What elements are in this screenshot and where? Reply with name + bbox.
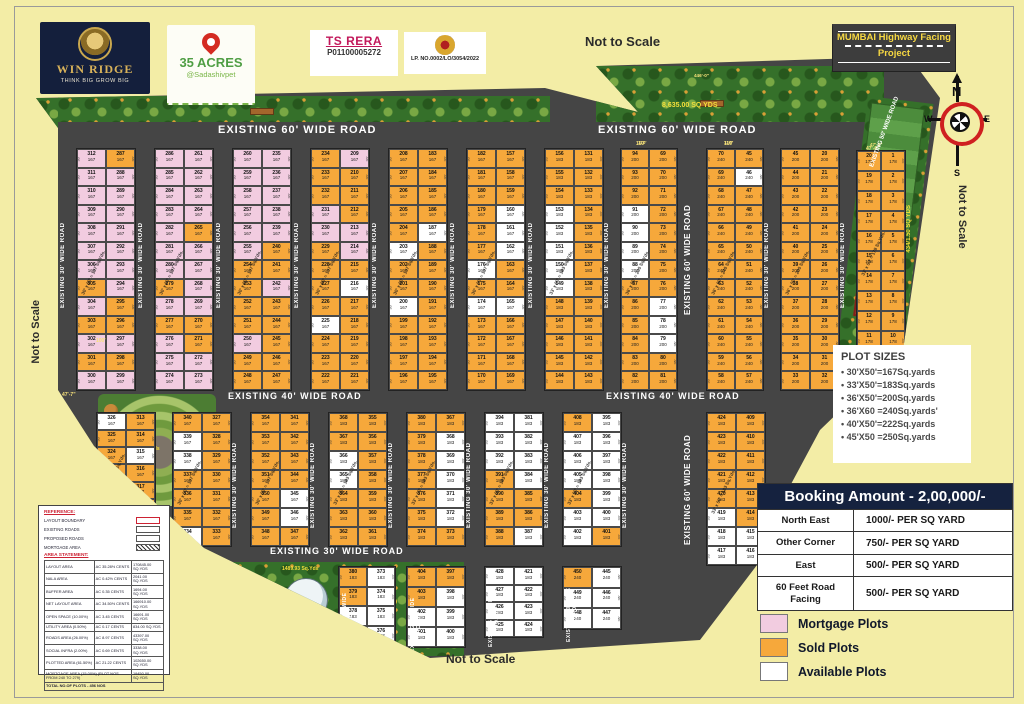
plot-cell[interactable]: 25316730': [233, 279, 262, 298]
plot-cell[interactable]: 32616730': [97, 413, 126, 430]
plot-cell[interactable]: 38618333': [514, 508, 543, 527]
plot-cell[interactable]: 17116730': [467, 353, 496, 372]
plot-cell[interactable]: 19816730': [389, 334, 418, 353]
plot-cell[interactable]: 32716730': [202, 413, 231, 432]
plot-cell[interactable]: 22716730': [311, 279, 340, 298]
plot-cell[interactable]: 16116730': [496, 223, 525, 242]
plot-cell[interactable]: 42218333': [707, 451, 736, 470]
plot-cell[interactable]: 20916730': [340, 149, 369, 168]
plot-cell[interactable]: 37118333': [436, 489, 465, 508]
plot-cell[interactable]: 18716730': [418, 223, 447, 242]
plot-cell[interactable]: 27716730': [155, 316, 184, 335]
plot-cell[interactable]: 8320036': [621, 353, 649, 372]
plot-cell[interactable]: 18216730': [467, 149, 496, 168]
plot-cell[interactable]: 7520036': [649, 260, 677, 279]
plot-cell[interactable]: 15318333': [545, 205, 574, 224]
plot-cell[interactable]: 25816730': [233, 186, 262, 205]
plot-cell[interactable]: 26416730': [184, 205, 213, 224]
plot-cell[interactable]: 39718333': [436, 567, 465, 587]
plot-cell[interactable]: 3620036': [781, 316, 810, 335]
plot-cell[interactable]: 21716730': [340, 297, 369, 316]
plot-cell[interactable]: 21116730': [340, 186, 369, 205]
plot-cell[interactable]: 39218333': [485, 451, 514, 470]
plot-cell[interactable]: 28216730': [155, 223, 184, 242]
plot-cell[interactable]: 14618333': [545, 334, 574, 353]
plot-cell[interactable]: 5624036': [735, 353, 763, 372]
plot-cell[interactable]: 15118333': [545, 242, 574, 261]
plot-cell[interactable]: 5324036': [735, 297, 763, 316]
plot-cell[interactable]: 3820036': [781, 279, 810, 298]
plot-cell[interactable]: 37518333': [367, 606, 395, 626]
plot-cell[interactable]: 24916730': [233, 353, 262, 372]
plot-cell[interactable]: 28516730': [155, 168, 184, 187]
plot-cell[interactable]: 4020036': [781, 242, 810, 261]
plot-cell[interactable]: 25516730': [233, 242, 262, 261]
plot-cell[interactable]: 4320036': [781, 186, 810, 205]
plot-cell[interactable]: 21816730': [340, 316, 369, 335]
plot-cell[interactable]: 28716730': [106, 149, 135, 168]
plot-cell[interactable]: 39818333': [436, 587, 465, 607]
plot-cell[interactable]: 817833': [881, 291, 905, 311]
plot-cell[interactable]: 1317833': [857, 291, 881, 311]
plot-cell[interactable]: 20016730': [389, 297, 418, 316]
plot-cell[interactable]: 15816730': [496, 168, 525, 187]
plot-cell[interactable]: 8620036': [621, 297, 649, 316]
plot-cell[interactable]: 36718333': [329, 432, 358, 451]
plot-cell[interactable]: 18016730': [467, 186, 496, 205]
plot-cell[interactable]: 40318333': [563, 508, 592, 527]
plot-cell[interactable]: 39318333': [485, 432, 514, 451]
plot-cell[interactable]: 41918333': [707, 508, 736, 527]
plot-cell[interactable]: 35416730': [251, 413, 280, 432]
plot-cell[interactable]: 27216730': [184, 353, 213, 372]
plot-cell[interactable]: 7320036': [649, 223, 677, 242]
plot-cell[interactable]: 21916730': [340, 334, 369, 353]
plot-cell[interactable]: 22616730': [311, 297, 340, 316]
plot-cell[interactable]: 34016730': [173, 413, 202, 432]
plot-cell[interactable]: 40118333': [592, 527, 621, 546]
plot-cell[interactable]: 1517833': [857, 251, 881, 271]
plot-cell[interactable]: 39718333': [592, 451, 621, 470]
plot-cell[interactable]: 2320036': [810, 205, 839, 224]
plot-cell[interactable]: 7720036': [649, 297, 677, 316]
plot-cell[interactable]: 3720036': [781, 297, 810, 316]
plot-cell[interactable]: 217833': [881, 171, 905, 191]
plot-cell[interactable]: 3420036': [781, 353, 810, 372]
plot-cell[interactable]: 28416730': [155, 186, 184, 205]
plot-cell[interactable]: 17216730': [467, 334, 496, 353]
plot-cell[interactable]: 38118333': [514, 413, 543, 432]
plot-cell[interactable]: 9420036': [621, 149, 649, 168]
plot-cell[interactable]: 4924036': [735, 223, 763, 242]
plot-cell[interactable]: 917833': [881, 311, 905, 331]
plot-cell[interactable]: 37318333': [367, 567, 395, 587]
plot-cell[interactable]: 44624036': [592, 588, 621, 609]
plot-cell[interactable]: 2120036': [810, 168, 839, 187]
plot-cell[interactable]: 27416730': [155, 371, 184, 390]
plot-cell[interactable]: 8920036': [621, 242, 649, 261]
plot-cell[interactable]: 8120036': [649, 371, 677, 390]
plot-cell[interactable]: 24016730': [262, 242, 291, 261]
plot-cell[interactable]: 31116730': [77, 168, 106, 187]
plot-cell[interactable]: 39918333': [592, 489, 621, 508]
plot-cell[interactable]: 2420036': [810, 223, 839, 242]
plot-cell[interactable]: 23116730': [311, 205, 340, 224]
plot-cell[interactable]: 22516730': [311, 316, 340, 335]
plot-cell[interactable]: 20616730': [389, 186, 418, 205]
plot-cell[interactable]: 18316730': [418, 149, 447, 168]
plot-cell[interactable]: 19016730': [418, 279, 447, 298]
plot-cell[interactable]: 40418333': [563, 489, 592, 508]
plot-cell[interactable]: 38718333': [514, 527, 543, 546]
plot-cell[interactable]: 17916730': [467, 205, 496, 224]
plot-cell[interactable]: 24516730': [262, 334, 291, 353]
plot-cell[interactable]: 37618333': [407, 489, 436, 508]
plot-cell[interactable]: 29116730': [106, 223, 135, 242]
plot-cell[interactable]: 39518333': [592, 413, 621, 432]
plot-cell[interactable]: 35316730': [251, 432, 280, 451]
plot-cell[interactable]: 33616730': [173, 489, 202, 508]
plot-cell[interactable]: 42118333': [707, 470, 736, 489]
plot-cell[interactable]: 16616730': [496, 316, 525, 335]
plot-cell[interactable]: 20716730': [389, 168, 418, 187]
plot-cell[interactable]: 25716730': [233, 205, 262, 224]
plot-cell[interactable]: 19116730': [418, 297, 447, 316]
plot-cell[interactable]: 40718333': [563, 432, 592, 451]
plot-cell[interactable]: 6224036': [707, 297, 735, 316]
plot-cell[interactable]: 39818333': [592, 470, 621, 489]
plot-cell[interactable]: 36318333': [329, 508, 358, 527]
plot-cell[interactable]: 2920036': [810, 316, 839, 335]
plot-cell[interactable]: 28916730': [106, 186, 135, 205]
plot-cell[interactable]: 14218333': [574, 353, 603, 372]
plot-cell[interactable]: 38218333': [514, 432, 543, 451]
plot-cell[interactable]: 37818333': [407, 451, 436, 470]
plot-cell[interactable]: 26316730': [184, 186, 213, 205]
plot-cell[interactable]: 42318333': [514, 602, 543, 620]
plot-cell[interactable]: 6920036': [649, 149, 677, 168]
plot-cell[interactable]: 34116730': [280, 413, 309, 432]
plot-cell[interactable]: 35718333': [358, 451, 387, 470]
plot-cell[interactable]: 39118333': [485, 470, 514, 489]
plot-cell[interactable]: 44724036': [592, 608, 621, 629]
plot-cell[interactable]: 5124036': [735, 260, 763, 279]
plot-cell[interactable]: 28616730': [155, 149, 184, 168]
plot-cell[interactable]: 33816730': [173, 451, 202, 470]
plot-cell[interactable]: 32916730': [202, 451, 231, 470]
plot-cell[interactable]: 41118333': [736, 451, 765, 470]
plot-cell[interactable]: 29916730': [106, 371, 135, 390]
plot-cell[interactable]: 31316730': [126, 413, 155, 430]
plot-cell[interactable]: 26516730': [184, 223, 213, 242]
plot-cell[interactable]: 42118333': [514, 567, 543, 585]
plot-cell[interactable]: 17516730': [467, 279, 496, 298]
plot-cell[interactable]: 21216730': [340, 205, 369, 224]
plot-cell[interactable]: 6824036': [707, 186, 735, 205]
plot-cell[interactable]: 26816730': [184, 279, 213, 298]
plot-cell[interactable]: 7820036': [649, 316, 677, 335]
plot-cell[interactable]: 27016730': [184, 316, 213, 335]
plot-cell[interactable]: 13818333': [574, 279, 603, 298]
plot-cell[interactable]: 15916730': [496, 186, 525, 205]
plot-cell[interactable]: 25116730': [233, 316, 262, 335]
plot-cell[interactable]: 37718333': [407, 470, 436, 489]
plot-cell[interactable]: 6424036': [707, 260, 735, 279]
plot-cell[interactable]: 30916730': [77, 205, 106, 224]
plot-cell[interactable]: 34516730': [280, 489, 309, 508]
plot-cell[interactable]: 37918333': [407, 432, 436, 451]
plot-cell[interactable]: 15018333': [545, 260, 574, 279]
plot-cell[interactable]: 35116730': [251, 470, 280, 489]
plot-cell[interactable]: 42418333': [707, 413, 736, 432]
plot-cell[interactable]: 33716730': [173, 470, 202, 489]
plot-cell[interactable]: 16716730': [496, 334, 525, 353]
plot-cell[interactable]: 30016730': [77, 371, 106, 390]
plot-cell[interactable]: 15218333': [545, 223, 574, 242]
plot-cell[interactable]: 31216730': [77, 149, 106, 168]
plot-cell[interactable]: 29016730': [106, 205, 135, 224]
plot-cell[interactable]: 22316730': [311, 353, 340, 372]
plot-cell[interactable]: 24716730': [262, 371, 291, 390]
plot-cell[interactable]: 40918333': [736, 413, 765, 432]
plot-cell[interactable]: 36118333': [358, 527, 387, 546]
plot-cell[interactable]: 26616730': [184, 242, 213, 261]
plot-cell[interactable]: 20516730': [389, 205, 418, 224]
plot-cell[interactable]: 37218333': [436, 508, 465, 527]
plot-cell[interactable]: 27816730': [155, 297, 184, 316]
plot-cell[interactable]: 19616730': [389, 371, 418, 390]
plot-cell[interactable]: 17616730': [467, 260, 496, 279]
plot-cell[interactable]: 13718333': [574, 260, 603, 279]
plot-cell[interactable]: 4624036': [735, 168, 763, 187]
plot-cell[interactable]: 18916730': [418, 260, 447, 279]
plot-cell[interactable]: 36818333': [329, 413, 358, 432]
plot-cell[interactable]: 36518333': [329, 470, 358, 489]
plot-cell[interactable]: 35818333': [358, 470, 387, 489]
plot-cell[interactable]: 6724036': [707, 205, 735, 224]
plot-cell[interactable]: 23316730': [311, 168, 340, 187]
plot-cell[interactable]: 15518333': [545, 168, 574, 187]
plot-cell[interactable]: 617833': [881, 251, 905, 271]
plot-cell[interactable]: 36918333': [436, 451, 465, 470]
plot-cell[interactable]: 1817833': [857, 191, 881, 211]
plot-cell[interactable]: 41818333': [707, 527, 736, 546]
plot-cell[interactable]: 7020036': [649, 168, 677, 187]
plot-cell[interactable]: 24216730': [262, 279, 291, 298]
plot-cell[interactable]: 23416730': [311, 149, 340, 168]
plot-cell[interactable]: 9020036': [621, 223, 649, 242]
plot-cell[interactable]: 33016730': [202, 470, 231, 489]
plot-cell[interactable]: 32516730': [97, 430, 126, 447]
plot-cell[interactable]: 22816730': [311, 260, 340, 279]
plot-cell[interactable]: 29316730': [106, 260, 135, 279]
plot-cell[interactable]: 16416730': [496, 279, 525, 298]
plot-cell[interactable]: 5024036': [735, 242, 763, 261]
plot-cell[interactable]: 5224036': [735, 279, 763, 298]
plot-cell[interactable]: 15716730': [496, 149, 525, 168]
plot-cell[interactable]: 19716730': [389, 353, 418, 372]
plot-cell[interactable]: 30516730': [77, 279, 106, 298]
plot-cell[interactable]: 16216730': [496, 242, 525, 261]
plot-cell[interactable]: 34616730': [280, 508, 309, 527]
plot-cell[interactable]: 29216730': [106, 242, 135, 261]
plot-cell[interactable]: 19516730': [418, 371, 447, 390]
plot-cell[interactable]: 7120036': [649, 186, 677, 205]
plot-cell[interactable]: 23816730': [262, 205, 291, 224]
plot-cell[interactable]: 16516730': [496, 297, 525, 316]
plot-cell[interactable]: 26116730': [184, 149, 213, 168]
plot-cell[interactable]: 31616730': [126, 464, 155, 481]
plot-cell[interactable]: 19216730': [418, 316, 447, 335]
plot-cell[interactable]: 17716730': [467, 242, 496, 261]
plot-cell[interactable]: 35216730': [251, 451, 280, 470]
plot-cell[interactable]: 37018333': [436, 470, 465, 489]
plot-cell[interactable]: 34416730': [280, 470, 309, 489]
plot-cell[interactable]: 27916730': [155, 279, 184, 298]
plot-cell[interactable]: 6024036': [707, 334, 735, 353]
plot-cell[interactable]: 28116730': [155, 242, 184, 261]
plot-cell[interactable]: 35918333': [358, 489, 387, 508]
plot-cell[interactable]: 8220036': [621, 371, 649, 390]
plot-cell[interactable]: 18816730': [418, 242, 447, 261]
plot-cell[interactable]: 42418333': [514, 620, 543, 638]
plot-cell[interactable]: 14818333': [545, 297, 574, 316]
plot-cell[interactable]: 7220036': [649, 205, 677, 224]
plot-cell[interactable]: 5924036': [707, 353, 735, 372]
plot-cell[interactable]: 317833': [881, 191, 905, 211]
plot-cell[interactable]: 33916730': [173, 432, 202, 451]
plot-cell[interactable]: 39618333': [592, 432, 621, 451]
plot-cell[interactable]: 6324036': [707, 279, 735, 298]
plot-cell[interactable]: 36818333': [436, 432, 465, 451]
plot-cell[interactable]: 42218333': [514, 585, 543, 603]
plot-cell[interactable]: 717833': [881, 271, 905, 291]
plot-cell[interactable]: 40018333': [592, 508, 621, 527]
plot-cell[interactable]: 8820036': [621, 260, 649, 279]
plot-cell[interactable]: 5824036': [707, 371, 735, 390]
plot-cell[interactable]: 2620036': [810, 260, 839, 279]
plot-cell[interactable]: 37418333': [367, 587, 395, 607]
plot-cell[interactable]: 33116730': [202, 489, 231, 508]
plot-cell[interactable]: 14418333': [545, 371, 574, 390]
plot-cell[interactable]: 5724036': [735, 371, 763, 390]
plot-cell[interactable]: 13218333': [574, 168, 603, 187]
plot-cell[interactable]: 6624036': [707, 223, 735, 242]
plot-cell[interactable]: 417833': [881, 211, 905, 231]
plot-cell[interactable]: 25616730': [233, 223, 262, 242]
plot-cell[interactable]: 7420036': [649, 242, 677, 261]
plot-cell[interactable]: 42318333': [707, 432, 736, 451]
plot-cell[interactable]: 38318333': [514, 451, 543, 470]
plot-cell[interactable]: 41718333': [707, 546, 736, 565]
plot-cell[interactable]: 23516730': [262, 149, 291, 168]
plot-cell[interactable]: 29516730': [106, 297, 135, 316]
plot-cell[interactable]: 26216730': [184, 168, 213, 187]
plot-cell[interactable]: 8420036': [621, 334, 649, 353]
plot-cell[interactable]: 42818333': [485, 567, 514, 585]
plot-cell[interactable]: 24816730': [233, 371, 262, 390]
plot-cell[interactable]: 40218333': [563, 527, 592, 546]
plot-cell[interactable]: 27116730': [184, 334, 213, 353]
plot-cell[interactable]: 37518333': [407, 508, 436, 527]
plot-cell[interactable]: 39918333': [436, 607, 465, 627]
plot-cell[interactable]: 31516730': [126, 447, 155, 464]
plot-cell[interactable]: 9120036': [621, 205, 649, 224]
plot-cell[interactable]: 28016730': [155, 260, 184, 279]
plot-cell[interactable]: 30316730': [77, 316, 106, 335]
plot-cell[interactable]: 6524036': [707, 242, 735, 261]
plot-cell[interactable]: 19416730': [418, 353, 447, 372]
plot-cell[interactable]: 34816730': [251, 527, 280, 546]
plot-cell[interactable]: 35518333': [358, 413, 387, 432]
plot-cell[interactable]: 21416730': [340, 242, 369, 261]
plot-cell[interactable]: 2020036': [810, 149, 839, 168]
plot-cell[interactable]: 42018333': [707, 489, 736, 508]
plot-cell[interactable]: 40418333': [407, 567, 436, 587]
plot-cell[interactable]: 20316730': [389, 242, 418, 261]
plot-cell[interactable]: 23616730': [262, 168, 291, 187]
plot-cell[interactable]: 5524036': [735, 334, 763, 353]
plot-cell[interactable]: 40618333': [563, 451, 592, 470]
plot-cell[interactable]: 4824036': [735, 205, 763, 224]
plot-cell[interactable]: 31016730': [77, 186, 106, 205]
plot-cell[interactable]: 29616730': [106, 316, 135, 335]
plot-cell[interactable]: 21316730': [340, 223, 369, 242]
plot-cell[interactable]: 25416730': [233, 260, 262, 279]
plot-cell[interactable]: 7024036': [707, 149, 735, 168]
plot-cell[interactable]: 5424036': [735, 316, 763, 335]
plot-cell[interactable]: 15618333': [545, 149, 574, 168]
plot-cell[interactable]: 22216730': [311, 371, 340, 390]
plot-cell[interactable]: 14518333': [545, 353, 574, 372]
plot-cell[interactable]: 35618333': [358, 432, 387, 451]
plot-cell[interactable]: 3920036': [781, 260, 810, 279]
plot-cell[interactable]: 4120036': [781, 223, 810, 242]
plot-cell[interactable]: 8520036': [621, 316, 649, 335]
plot-cell[interactable]: 16016730': [496, 205, 525, 224]
plot-cell[interactable]: 1417833': [857, 271, 881, 291]
plot-cell[interactable]: 22116730': [340, 371, 369, 390]
plot-cell[interactable]: 27316730': [184, 371, 213, 390]
plot-cell[interactable]: 13918333': [574, 297, 603, 316]
plot-cell[interactable]: 21016730': [340, 168, 369, 187]
plot-cell[interactable]: 32816730': [202, 432, 231, 451]
plot-cell[interactable]: 17316730': [467, 316, 496, 335]
plot-cell[interactable]: 27616730': [155, 334, 184, 353]
plot-cell[interactable]: 31416730': [126, 430, 155, 447]
plot-cell[interactable]: 4220036': [781, 205, 810, 224]
plot-cell[interactable]: 2520036': [810, 242, 839, 261]
plot-cell[interactable]: 36618333': [329, 451, 358, 470]
plot-cell[interactable]: 17016730': [467, 371, 496, 390]
plot-cell[interactable]: 41018333': [736, 432, 765, 451]
plot-cell[interactable]: 14118333': [574, 334, 603, 353]
plot-cell[interactable]: 17816730': [467, 223, 496, 242]
plot-cell[interactable]: 22416730': [311, 334, 340, 353]
plot-cell[interactable]: 39418333': [485, 413, 514, 432]
plot-cell[interactable]: 37318333': [436, 527, 465, 546]
plot-cell[interactable]: 7920036': [649, 334, 677, 353]
plot-cell[interactable]: 30616730': [77, 260, 106, 279]
plot-cell[interactable]: 34916730': [251, 508, 280, 527]
plot-cell[interactable]: 21616730': [340, 279, 369, 298]
plot-cell[interactable]: 3520036': [781, 334, 810, 353]
plot-cell[interactable]: 38018333': [339, 567, 367, 587]
plot-cell[interactable]: 39018333': [485, 489, 514, 508]
plot-cell[interactable]: 44524036': [592, 567, 621, 588]
plot-cell[interactable]: 23016730': [311, 223, 340, 242]
plot-cell[interactable]: 30716730': [77, 242, 106, 261]
